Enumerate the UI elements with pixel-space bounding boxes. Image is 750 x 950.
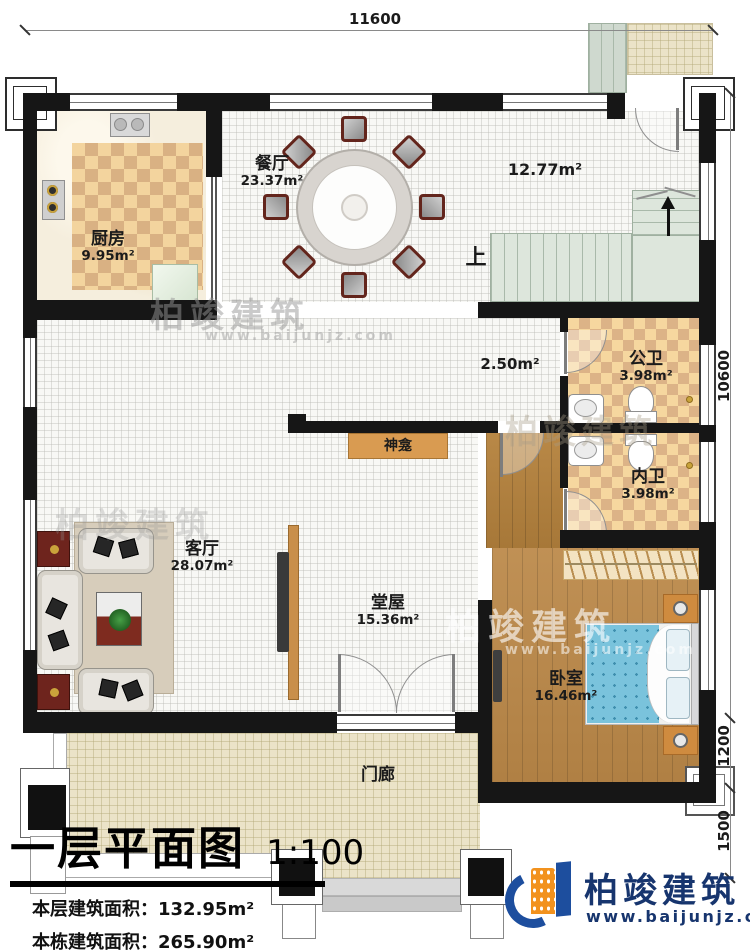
sofa-left (37, 570, 83, 670)
nightstand (663, 594, 698, 623)
bed-pillow (666, 677, 690, 719)
kitchen-stove (42, 180, 65, 220)
wall-kitchen-south (23, 300, 217, 320)
wall-kitchen-dining (206, 111, 222, 177)
entry-door-leaf (676, 108, 679, 150)
drawing-scale: 1:100 (266, 833, 364, 873)
page-title: 一层平面图 (10, 822, 245, 875)
stair-direction-arrow (667, 208, 670, 236)
stair-landing (632, 235, 700, 302)
dimension-right-upper-value: 10600 (715, 346, 733, 406)
plant (109, 609, 131, 631)
wall-bottom (23, 712, 337, 733)
floor-plan-canvas: 神龛 厨房 9.95m² (0, 0, 750, 950)
door-stop (686, 396, 693, 403)
wall-right (699, 93, 716, 163)
room-label-dining: 餐厅 23.37m² (233, 155, 311, 189)
dimension-top-value: 11600 (330, 10, 420, 28)
room-label-living: 客厅 28.07m² (162, 540, 242, 574)
private-bath-door-leaf (564, 489, 567, 533)
nightstand (663, 726, 698, 755)
wall-post (288, 414, 306, 433)
title-underline (10, 881, 325, 887)
wall-bath-west (560, 318, 568, 332)
wall-bath-west (560, 433, 568, 488)
rear-steps (588, 23, 627, 93)
window-dining-north (270, 93, 432, 111)
wall-right-post (699, 425, 716, 442)
shrine-cabinet: 神龛 (348, 433, 448, 459)
wall-right (699, 522, 716, 590)
dining-chair (341, 272, 367, 298)
refrigerator (152, 264, 198, 303)
coffee-table (96, 592, 142, 646)
wall-innerhall-south (540, 421, 568, 433)
window-kitchen-north (70, 93, 177, 111)
sliding-door-kitchen (211, 177, 217, 300)
brand-logo: 柏竣建筑 www.baijunjz.com (500, 855, 745, 940)
room-label-kitchen: 厨房 9.95m² (70, 230, 146, 264)
shrine-label: 神龛 (384, 438, 412, 454)
room-label-stair-hall: 12.77m² (495, 161, 595, 179)
wall-stair-south (478, 302, 716, 318)
stair-flight (490, 233, 632, 302)
window-private-bath-east (699, 442, 716, 522)
wall-top (177, 93, 270, 111)
porch-column-pedestal (470, 903, 504, 939)
room-label-private-bath: 内卫 3.98m² (610, 468, 686, 502)
logo-text: 柏竣建筑 (584, 863, 740, 912)
window-living-west (23, 500, 37, 650)
wall-bedroom-west (478, 600, 492, 803)
side-table (37, 674, 70, 710)
wall-innerhall-south (448, 421, 498, 433)
wall-bath-divider (568, 423, 699, 433)
room-label-public-bath: 公卫 3.98m² (608, 350, 684, 384)
building-area-line: 本栋建筑面积：265.90m² (32, 928, 364, 950)
dimension-right-middle-value: 1200 (715, 716, 733, 776)
kitchen-sink (110, 113, 150, 137)
entry-double-door-left-leaf (338, 654, 341, 712)
lamp (673, 733, 688, 748)
dining-chair (341, 116, 367, 142)
sofa-top (78, 528, 154, 574)
wall-mainhall-north (288, 421, 450, 433)
dimension-right-lower-value: 1500 (715, 801, 733, 861)
wall-top (432, 93, 503, 111)
wall-bedroom-north (560, 530, 699, 548)
public-bath-door-leaf (564, 330, 567, 374)
wall-left (23, 407, 37, 500)
porch-column (468, 858, 504, 896)
entry-double-door-right-leaf (452, 654, 455, 712)
wall-bedroom-south (478, 782, 716, 803)
wardrobe-rod (565, 563, 697, 565)
wall-right (699, 240, 716, 345)
lamp (673, 601, 688, 616)
wall-bath-west (560, 376, 568, 421)
private-bath-sink (568, 436, 604, 466)
logo-url: www.baijunjz.com (586, 907, 750, 926)
door-stop (686, 462, 693, 469)
bed-headboard (691, 623, 699, 725)
public-bath-toilet-tank (625, 411, 657, 423)
window-bedroom-east (699, 590, 716, 690)
room-label-inner-hall: 2.50m² (468, 356, 552, 373)
wall-top-post (607, 93, 625, 119)
dining-table-center (341, 194, 368, 221)
bed-pillow (666, 629, 690, 671)
window-stairhall-north (503, 93, 607, 111)
room-label-bedroom: 卧室 16.46m² (526, 670, 606, 704)
window-kitchen-west (23, 338, 37, 407)
title-block: 一层平面图 1:100 本层建筑面积：132.95m² 本栋建筑面积：265.9… (10, 812, 364, 950)
corridor-door-leaf (500, 433, 503, 477)
public-bath-sink (568, 394, 604, 424)
room-label-main-hall: 堂屋 15.36m² (348, 594, 428, 628)
window-public-bath-east (699, 345, 716, 425)
sofa-pillow (98, 678, 118, 698)
stair-arrow-head (661, 196, 675, 209)
room-label-porch: 门廊 (350, 766, 406, 785)
dining-chair (263, 194, 289, 220)
side-table (37, 531, 70, 567)
dimension-line-top (25, 30, 713, 31)
entry-threshold (337, 714, 455, 731)
dining-chair (419, 194, 445, 220)
tv-board (288, 525, 299, 700)
tv-unit (277, 552, 289, 652)
window-stairhall-east (699, 163, 716, 240)
logo-icon (505, 860, 575, 932)
floor-area-line: 本层建筑面积：132.95m² (32, 895, 364, 921)
stairs-up-label: 上 (460, 246, 492, 270)
wardrobe (563, 550, 699, 580)
bedroom-tv (493, 650, 502, 702)
